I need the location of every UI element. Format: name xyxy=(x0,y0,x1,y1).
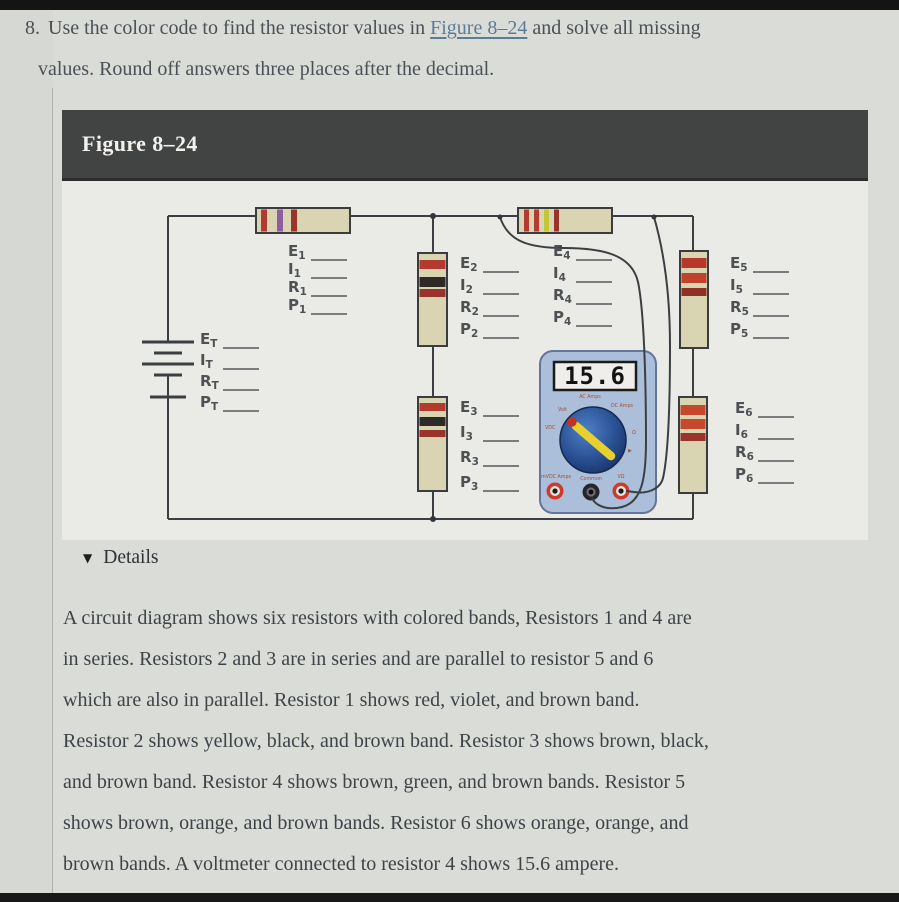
circuit-label-P4: P4 xyxy=(553,308,571,328)
circuit-label-I4: I4 xyxy=(553,264,566,284)
resistor-3-band-3-icon xyxy=(420,430,446,437)
dial-pointer-tip-icon xyxy=(567,417,576,426)
label-group-total: ETITRTPT xyxy=(200,330,259,413)
meter-label-4: Ω xyxy=(632,430,636,436)
resistor-1-band-1-icon xyxy=(261,210,267,232)
meter-label-2: DC Amps xyxy=(611,403,634,409)
circuit-label-P1: P1 xyxy=(288,296,306,316)
resistor-6 xyxy=(679,397,707,493)
circuit-label-I6: I6 xyxy=(735,421,748,441)
description-line-4: Resistor 2 shows yellow, black, and brow… xyxy=(63,721,875,762)
question-line-2: values. Round off answers three places a… xyxy=(38,49,885,90)
figure-card: Figure 8–24 15.6 VoltAC AmpsDC AmpsVDCΩ▶… xyxy=(62,110,868,540)
circuit-label-R4: R4 xyxy=(553,286,572,306)
bottom-black-bar xyxy=(0,893,899,902)
label-group-r2: E2I2R2P2 xyxy=(460,254,519,340)
label-group-r3: E3I3R3P3 xyxy=(460,398,519,493)
circuit-label-PT: PT xyxy=(200,393,219,413)
meter-label-5: ▶ xyxy=(628,448,632,454)
label-group-r4: E4I4R4P4 xyxy=(553,242,612,328)
resistor-3-band-2-icon xyxy=(420,417,446,426)
resistor-4 xyxy=(518,208,612,233)
circuit-label-P3: P3 xyxy=(460,473,478,493)
meter-label-6: mVDC Amps xyxy=(541,474,572,480)
circuit-label-E1: E1 xyxy=(288,242,306,262)
page: 8.Use the color code to find the resisto… xyxy=(0,0,899,902)
description-line-7: brown bands. A voltmeter connected to re… xyxy=(63,844,875,885)
resistor-5-band-3-icon xyxy=(682,288,707,296)
meter-terminal-common xyxy=(583,484,600,501)
resistor-5-band-2-icon xyxy=(682,273,707,283)
resistor-4-band-2-icon xyxy=(534,210,539,232)
meter-reading: 15.6 xyxy=(564,362,626,390)
circuit-label-I2: I2 xyxy=(460,276,473,296)
meter-terminal-left xyxy=(547,483,564,500)
resistor-1-band-2-icon xyxy=(277,210,283,232)
question-line-1: 8.Use the color code to find the resisto… xyxy=(25,8,885,49)
figure-header: Figure 8–24 xyxy=(62,110,868,181)
circuit-label-P5: P5 xyxy=(730,320,748,340)
circuit-label-ET: ET xyxy=(200,330,218,350)
resistor-5-band-1-icon xyxy=(682,258,707,268)
resistor-1-band-3-icon xyxy=(291,210,297,232)
question-number: 8. xyxy=(25,17,40,39)
resistor-2-band-1-icon xyxy=(420,260,446,269)
circuit-label-E4: E4 xyxy=(553,242,571,262)
resistor-5 xyxy=(680,251,708,348)
resistor-6-band-2-icon xyxy=(681,419,706,429)
circuit-label-I5: I5 xyxy=(730,276,743,296)
circuit-label-R5: R5 xyxy=(730,298,749,318)
resistor-4-band-1-icon xyxy=(524,210,529,232)
resistor-4-band-4-icon xyxy=(554,210,559,232)
multimeter: 15.6 VoltAC AmpsDC AmpsVDCΩ▶mVDC AmpsCom… xyxy=(540,351,656,513)
figure-description: A circuit diagram shows six resistors wi… xyxy=(63,598,875,885)
circuit-diagram: 15.6 VoltAC AmpsDC AmpsVDCΩ▶mVDC AmpsCom… xyxy=(62,186,868,540)
figure-body: 15.6 VoltAC AmpsDC AmpsVDCΩ▶mVDC AmpsCom… xyxy=(62,181,868,540)
meter-label-7: Common xyxy=(580,476,602,482)
card-left-border xyxy=(52,88,53,893)
circuit-label-E2: E2 xyxy=(460,254,478,274)
circuit-label-I3: I3 xyxy=(460,423,473,443)
description-line-2: in series. Resistors 2 and 3 are in seri… xyxy=(63,639,875,680)
figure-title: Figure 8–24 xyxy=(62,131,198,157)
label-group-r1: E1I1R1P1 xyxy=(288,242,347,316)
circuit-label-E3: E3 xyxy=(460,398,478,418)
label-group-r6: E6I6R6P6 xyxy=(735,399,794,485)
resistor-3 xyxy=(418,397,447,491)
details-label: Details xyxy=(103,547,158,569)
label-group-r5: E5I5R5P5 xyxy=(730,254,789,340)
circuit-label-E6: E6 xyxy=(735,399,753,419)
circuit-label-R3: R3 xyxy=(460,448,479,468)
details-arrow-icon: ▼ xyxy=(83,551,92,565)
circuit-label-P6: P6 xyxy=(735,465,753,485)
resistor-3-band-1-icon xyxy=(420,403,446,411)
resistor-1 xyxy=(256,208,350,233)
meter-label-0: Volt xyxy=(558,407,567,413)
circuit-label-E5: E5 xyxy=(730,254,748,274)
details-toggle[interactable]: ▼ Details xyxy=(83,547,158,569)
resistor-4-band-3-icon xyxy=(544,210,549,232)
circuit-label-R1: R1 xyxy=(288,278,307,298)
circuit-label-IT: IT xyxy=(200,351,214,371)
meter-label-1: AC Amps xyxy=(579,394,601,400)
description-line-6: shows brown, orange, and brown bands. Re… xyxy=(63,803,875,844)
resistor-6-band-1-icon xyxy=(681,405,706,415)
meter-label-3: VDC xyxy=(545,425,556,431)
question-block: 8.Use the color code to find the resisto… xyxy=(25,8,885,90)
question-text-pre: Use the color code to find the resistor … xyxy=(48,17,425,39)
resistor-2 xyxy=(418,253,447,346)
circuit-label-R6: R6 xyxy=(735,443,754,463)
figure-link[interactable]: Figure 8–24 xyxy=(430,17,527,39)
circuit-label-R2: R2 xyxy=(460,298,479,318)
description-line-5: and brown band. Resistor 4 shows brown, … xyxy=(63,762,875,803)
meter-label-8: VΩ xyxy=(618,474,625,480)
resistor-2-band-2-icon xyxy=(420,277,446,287)
resistor-2-band-3-icon xyxy=(420,289,446,297)
resistor-6-band-3-icon xyxy=(681,433,706,441)
circuit-label-P2: P2 xyxy=(460,320,478,340)
circuit-label-I1: I1 xyxy=(288,260,301,280)
question-text-post: and solve all missing xyxy=(532,17,700,39)
description-line-3: which are also in parallel. Resistor 1 s… xyxy=(63,680,875,721)
description-line-1: A circuit diagram shows six resistors wi… xyxy=(63,598,875,639)
circuit-label-RT: RT xyxy=(200,372,220,392)
